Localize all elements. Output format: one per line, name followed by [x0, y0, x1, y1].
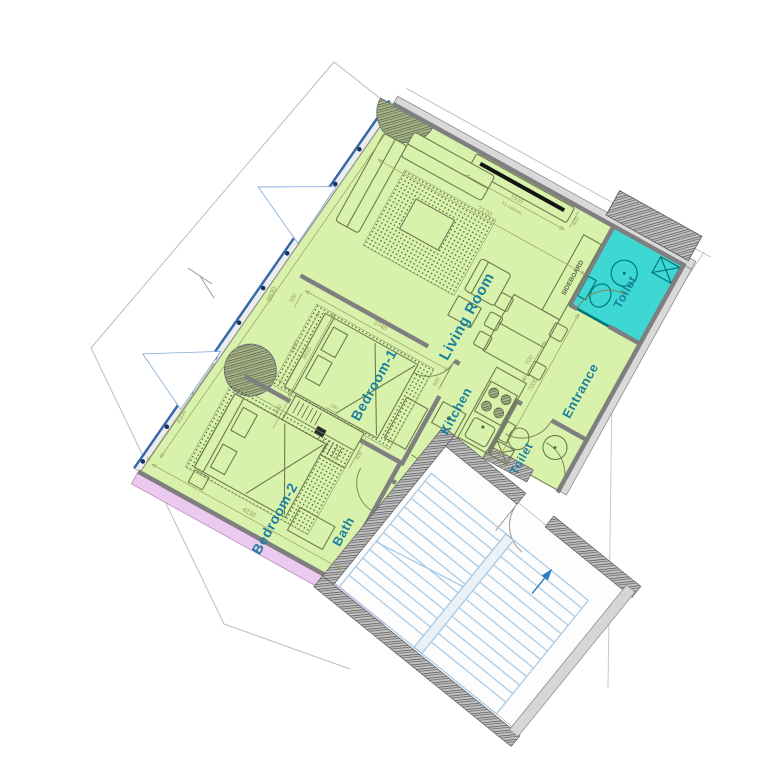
floorplan-page: { "title": "Apartment floor plan", "labe… [0, 0, 768, 768]
